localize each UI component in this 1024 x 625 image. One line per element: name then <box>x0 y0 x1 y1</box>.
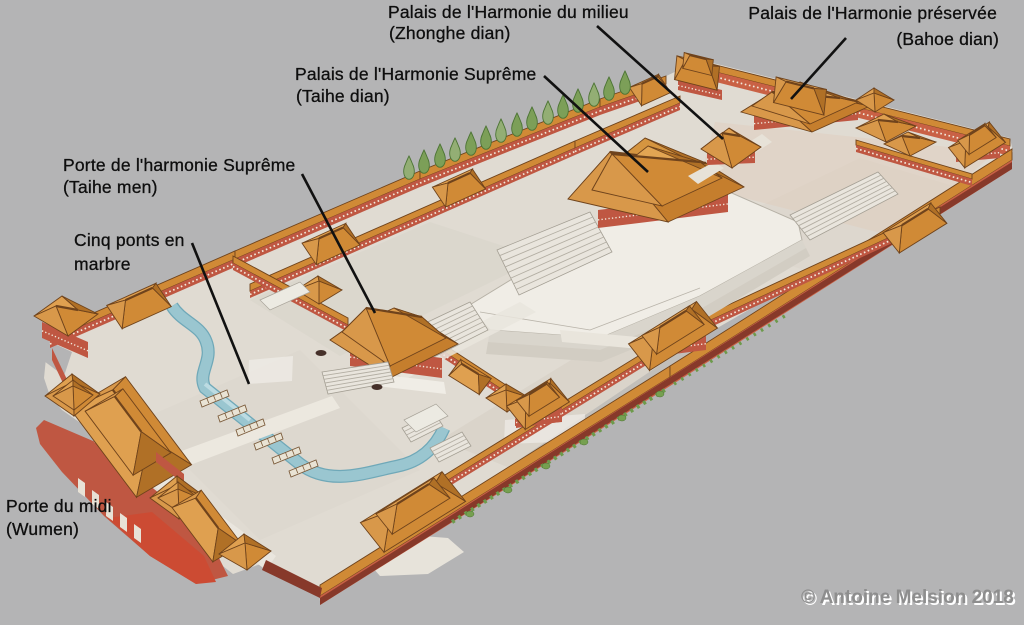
svg-text:marbre: marbre <box>74 254 131 274</box>
svg-text:Cinq ponts en: Cinq ponts en <box>74 230 185 250</box>
svg-text:Porte du midi: Porte du midi <box>6 496 112 516</box>
svg-text:Palais de l'Harmonie préservée: Palais de l'Harmonie préservée <box>748 3 997 23</box>
svg-text:(Bahoe dian): (Bahoe dian) <box>896 29 999 49</box>
svg-text:© Antoine Melsion 2018: © Antoine Melsion 2018 <box>801 587 1014 608</box>
svg-text:Porte de l'harmonie Suprême: Porte de l'harmonie Suprême <box>63 155 295 175</box>
svg-text:Palais de l'Harmonie du milieu: Palais de l'Harmonie du milieu <box>388 2 629 22</box>
svg-text:(Wumen): (Wumen) <box>6 519 79 539</box>
svg-text:(Zhonghe dian): (Zhonghe dian) <box>389 23 511 43</box>
svg-text:Palais de l'Harmonie Suprême: Palais de l'Harmonie Suprême <box>295 64 536 84</box>
svg-text:(Taihe dian): (Taihe dian) <box>296 86 390 106</box>
svg-text:(Taihe men): (Taihe men) <box>63 177 158 197</box>
